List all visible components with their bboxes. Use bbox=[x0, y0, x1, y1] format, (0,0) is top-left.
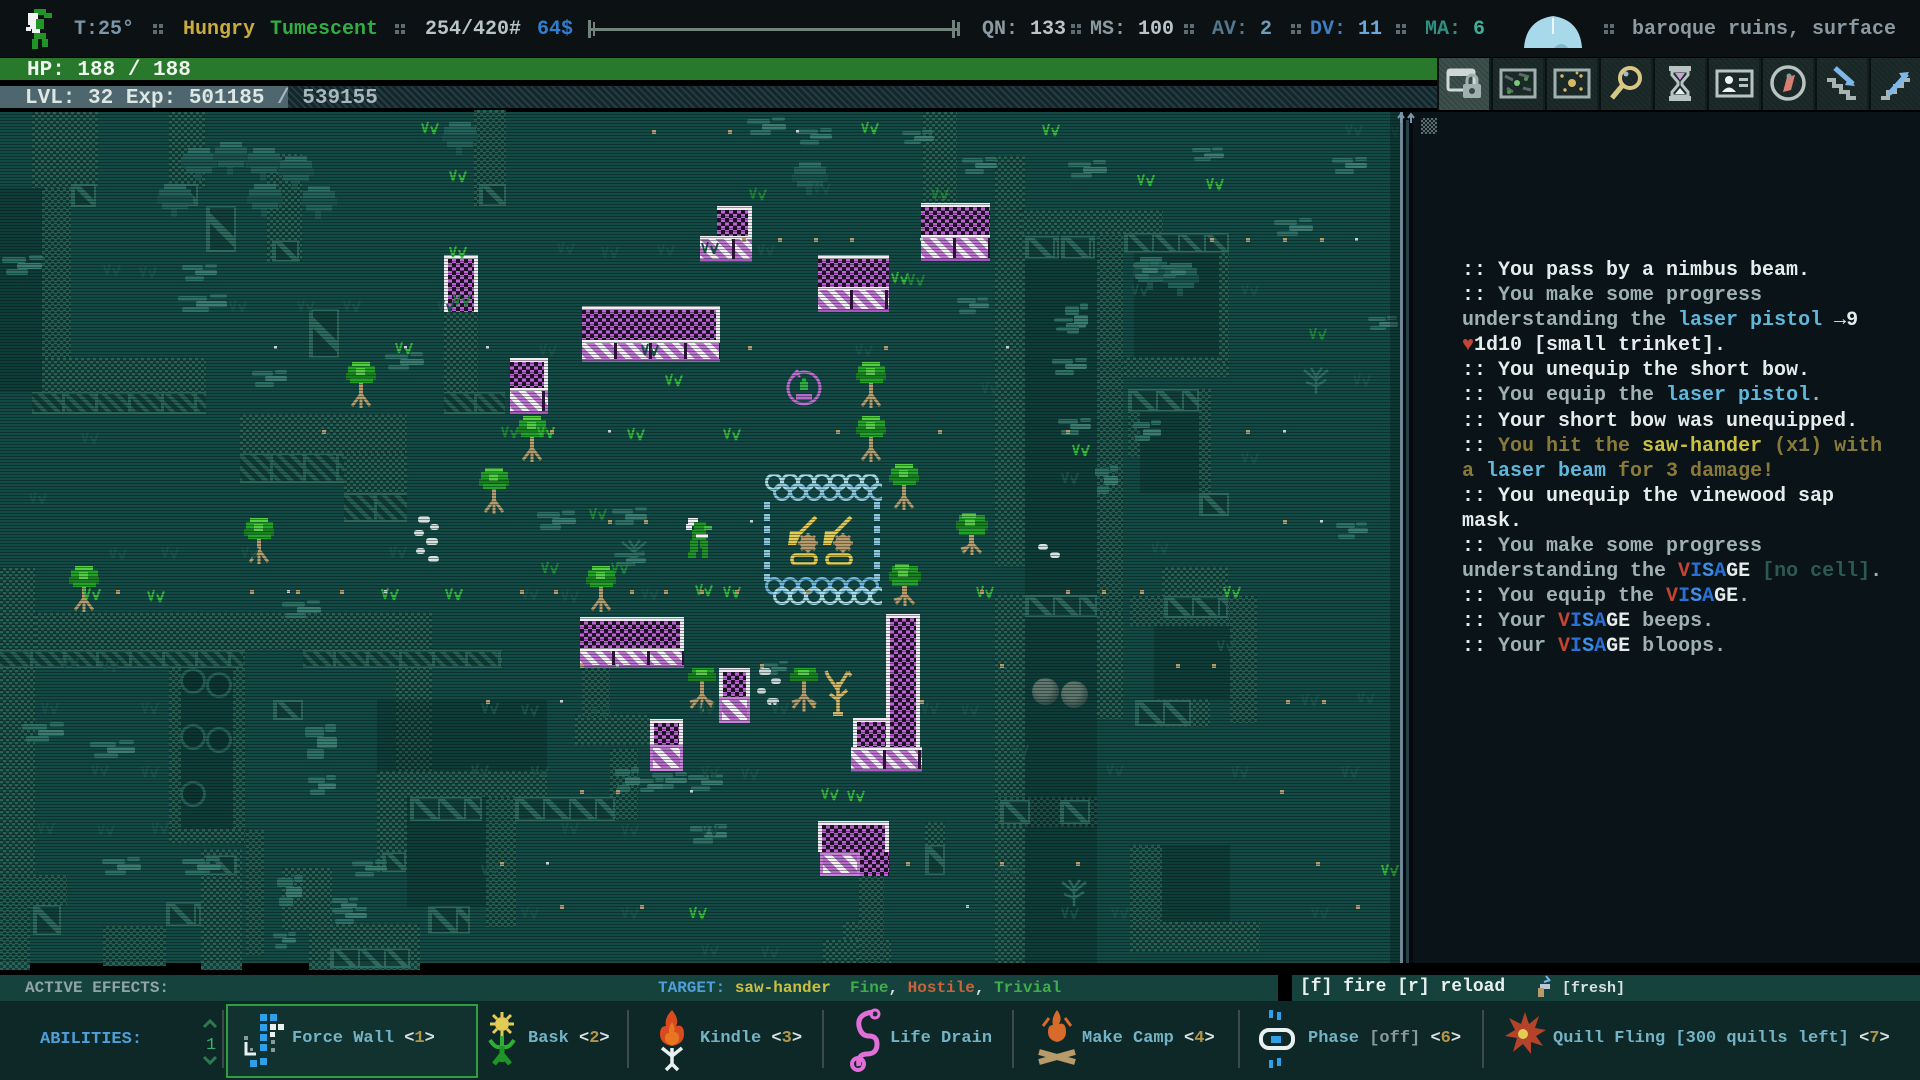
svg-text:1: 1 bbox=[206, 1036, 216, 1055]
